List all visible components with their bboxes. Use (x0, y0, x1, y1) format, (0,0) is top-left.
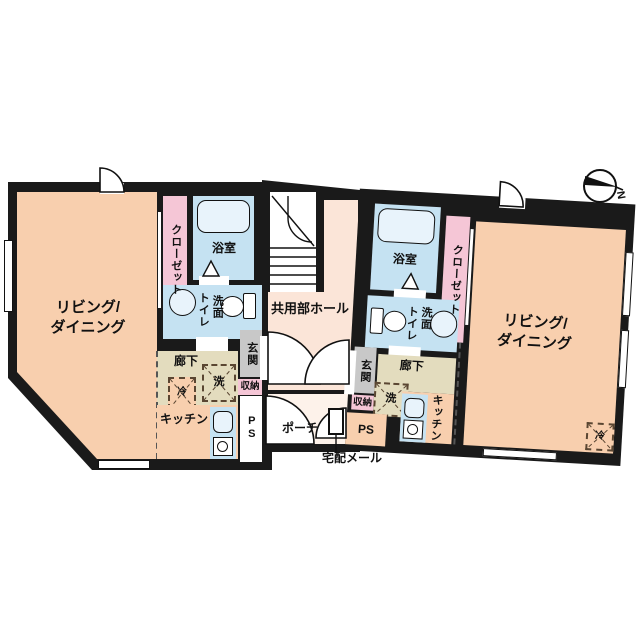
right-toilet-label: トイレ (403, 299, 419, 348)
delivery-mail-label: 宅配メール (310, 450, 394, 467)
left-washer-label: 洗 (202, 364, 236, 402)
left-toilet-label: トイレ (196, 286, 209, 334)
floor-plan: 浴室 クローゼット トイレ 洗面 廊下 玄関 収納 洗 冷 キッチン PS リビ… (0, 0, 640, 640)
delivery-mailbox-icon (328, 408, 344, 435)
left-wash-label: 洗面 (210, 287, 223, 327)
left-living-label-line2: ダイニング (38, 318, 138, 338)
right-washer-label: 洗 (373, 382, 409, 418)
right-storage-label: 収納 (351, 394, 374, 410)
right-ps-label: PS (345, 412, 387, 446)
right-entrance-label: 玄関 (352, 351, 376, 392)
common-hall-label: 共用部ホール (262, 300, 358, 318)
right-stove-burner-icon (407, 424, 419, 436)
left-wall-window (4, 240, 13, 312)
left-kitchen-sink-icon (213, 411, 233, 433)
right-top-door-gap (499, 197, 526, 209)
left-kitchen-stove-icon (213, 437, 233, 456)
left-fridge-label: 冷 (168, 377, 196, 410)
stairwell (270, 192, 316, 292)
right-kitchen-stove-icon (403, 419, 424, 439)
left-storage-label: 収納 (238, 379, 262, 395)
left-bathtub (197, 200, 250, 233)
left-entrance-label: 玄関 (240, 334, 262, 374)
porch-label: ポーチ (272, 420, 328, 436)
left-closet-slider (158, 212, 161, 308)
left-toilet-bowl-icon (221, 296, 244, 317)
right-unit: 浴室 クローゼット トイレ 洗面 廊下 玄関 収納 洗 冷 キッチン PS リビ… (335, 186, 640, 470)
right-hallway-label: 廊下 (387, 356, 436, 375)
right-bathtub (377, 208, 436, 245)
left-ps-label: PS (242, 404, 260, 452)
right-wash-label: 洗面 (417, 298, 432, 339)
left-kitchen-label: キッチン (158, 412, 210, 427)
right-toilet-tank-icon (370, 307, 384, 334)
compass-north-label: N (614, 190, 627, 200)
left-bath-label: 浴室 (196, 240, 252, 256)
compass-north-icon: N (584, 170, 627, 202)
left-washroom-door-gap (196, 337, 228, 351)
left-toilet-tank-icon (243, 293, 256, 319)
left-top-door-gap (100, 183, 124, 194)
left-stove-burner-icon (217, 441, 228, 452)
right-fridge-label: 冷 (585, 422, 615, 452)
right-bath-label: 浴室 (375, 250, 434, 269)
left-living-label-line1: リビング/ (38, 298, 138, 318)
left-bottom-window (98, 460, 150, 469)
left-closet-label: クローゼット (163, 204, 187, 316)
